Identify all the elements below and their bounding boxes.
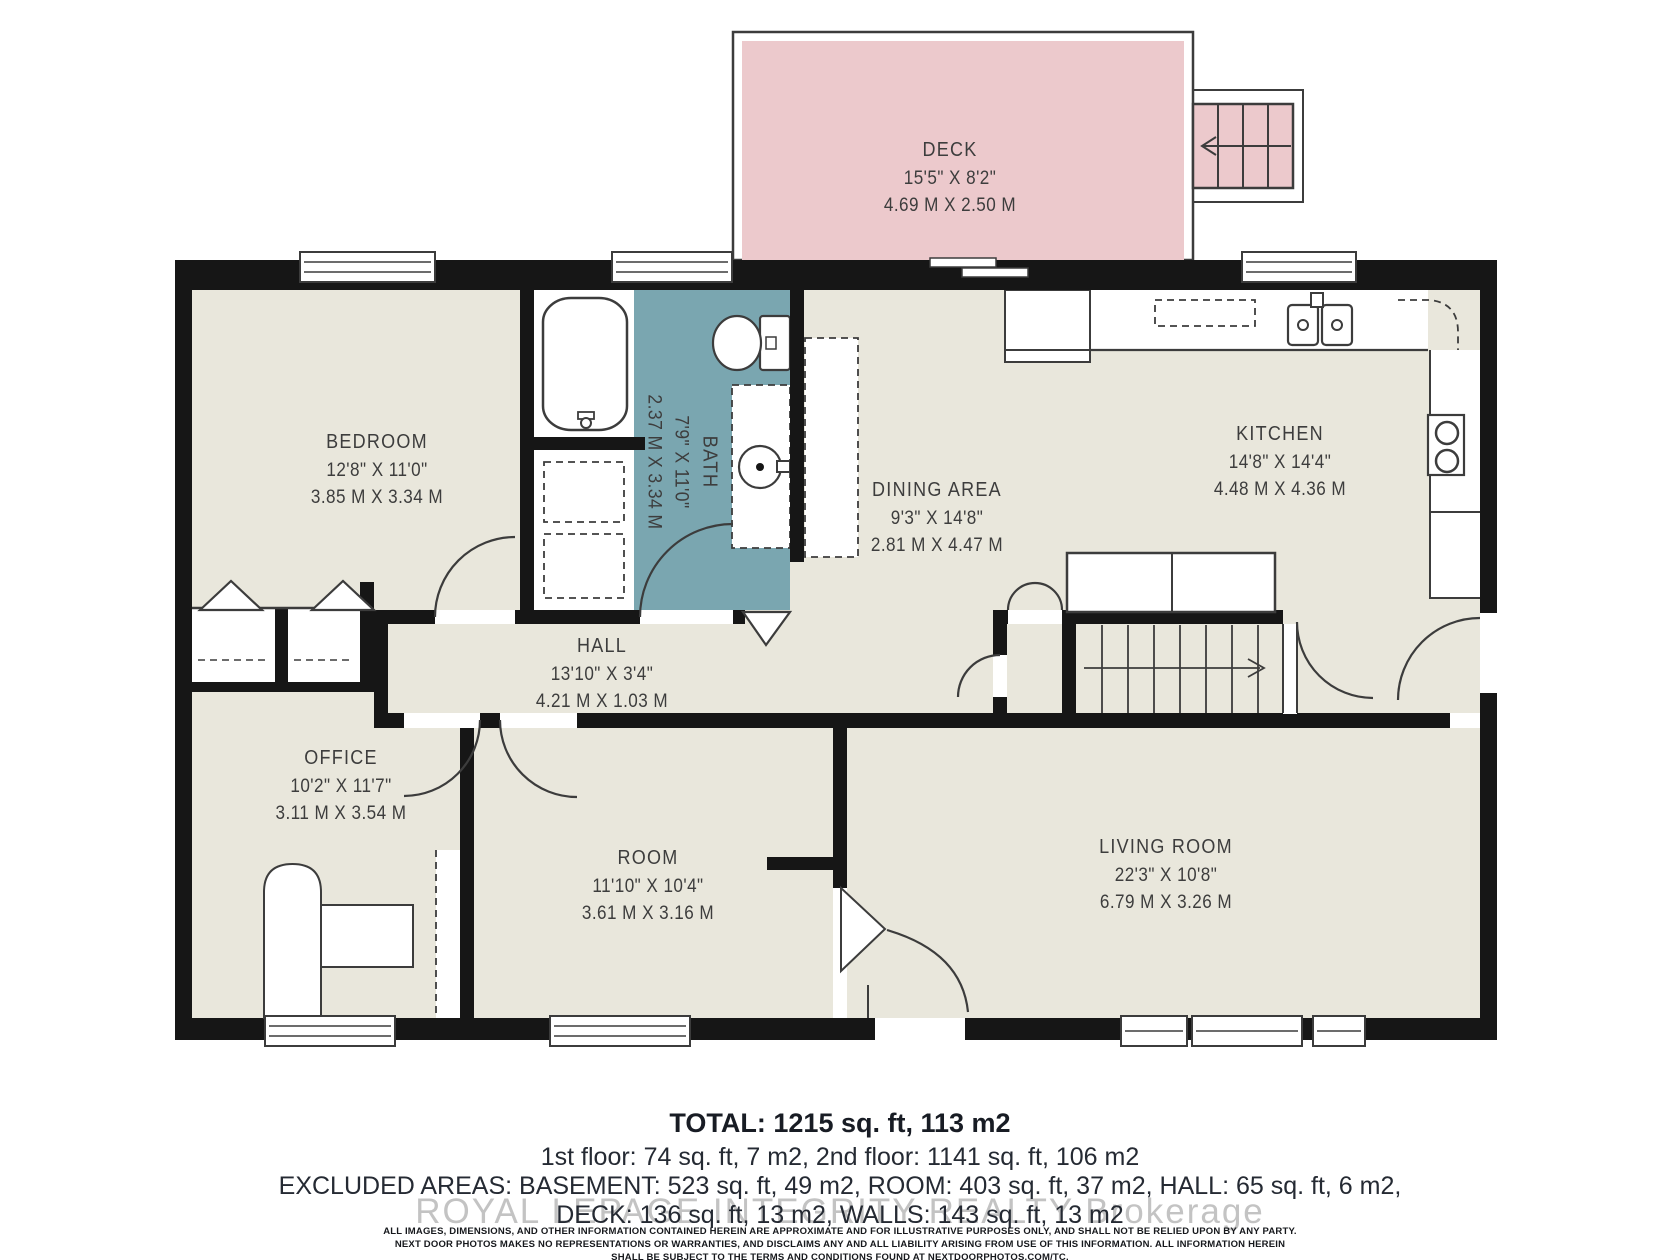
disclaimer-line3: SHALL BE SUBJECT TO THE TERMS AND CONDIT… (0, 1252, 1680, 1260)
room-dimensions-ft: 14'8" X 14'4" (1214, 449, 1346, 477)
bathroom-vanity-sink (732, 385, 790, 548)
room-name: HALL (536, 633, 668, 661)
room-dimensions-ft: 10'2" X 11'7" (276, 773, 407, 801)
room-name: DINING AREA (871, 477, 1003, 505)
room-name: LIVING ROOM (1099, 834, 1233, 862)
floor-plan-canvas: DECK 15'5" X 8'2" 4.69 M X 2.50 M BEDROO… (0, 0, 1680, 1260)
room-dimensions-m: 3.85 M X 3.34 M (311, 484, 443, 512)
room-dimensions-m: 3.61 M X 3.16 M (582, 900, 714, 928)
room-dimensions-m: 2.81 M X 4.47 M (871, 532, 1003, 560)
room-dimensions-ft: 9'3" X 14'8" (871, 505, 1003, 533)
toilet (713, 316, 790, 370)
excluded-areas-text-line1: EXCLUDED AREAS: BASEMENT: 523 sq. ft, 49… (0, 1172, 1680, 1201)
bath-wall-stub (534, 437, 645, 450)
room-label-bath: BATH 7'9" X 11'0" 2.37 M X 3.34 M (640, 394, 723, 529)
bathtub (534, 290, 634, 437)
kitchen-window (1242, 252, 1356, 282)
disclaimer-line2: NEXT DOOR PHOTOS MAKES NO REPRESENTATION… (0, 1239, 1680, 1250)
room-label-kitchen: KITCHEN 14'8" X 14'4" 4.48 M X 4.36 M (1214, 421, 1346, 504)
room-name: BATH (695, 394, 723, 529)
linen-closet (534, 450, 634, 610)
room-label-dining-area: DINING AREA 9'3" X 14'8" 2.81 M X 4.47 M (871, 477, 1003, 560)
office-closet (436, 850, 460, 1018)
room-dimensions-ft: 15'5" X 8'2" (884, 165, 1016, 193)
room-dimensions-m: 4.69 M X 2.50 M (884, 192, 1016, 220)
room-dimensions-ft: 13'10" X 3'4" (536, 661, 668, 689)
room-dimensions-m: 2.37 M X 3.34 M (640, 394, 668, 529)
stove (1428, 415, 1464, 475)
room-name: OFFICE (276, 745, 407, 773)
living-room-windows (1121, 1016, 1365, 1046)
room-label-living-room: LIVING ROOM 22'3" X 10'8" 6.79 M X 3.26 … (1099, 834, 1233, 917)
room-dimensions-m: 4.21 M X 1.03 M (536, 688, 668, 716)
disclaimer-line1: ALL IMAGES, DIMENSIONS, AND OTHER INFORM… (0, 1226, 1680, 1237)
room-label-deck: DECK 15'5" X 8'2" 4.69 M X 2.50 M (884, 137, 1016, 220)
kitchen-island (1067, 553, 1275, 612)
bath-window (612, 252, 732, 282)
room-label-room: ROOM 11'10" X 10'4" 3.61 M X 3.16 M (582, 845, 714, 928)
room-name: BEDROOM (311, 429, 443, 457)
room-window (550, 1016, 690, 1046)
room-dimensions-ft: 11'10" X 10'4" (582, 873, 714, 901)
room-dimensions-m: 3.11 M X 3.54 M (276, 800, 407, 828)
room-dimensions-ft: 7'9" X 11'0" (667, 394, 695, 529)
room-name: DECK (884, 137, 1016, 165)
office-window (265, 1016, 395, 1046)
room-dimensions-ft: 22'3" X 10'8" (1099, 862, 1233, 890)
room-dimensions-m: 6.79 M X 3.26 M (1099, 889, 1233, 917)
bedroom-window (300, 252, 435, 282)
room-name: ROOM (582, 845, 714, 873)
room-dimensions-ft: 12'8" X 11'0" (311, 457, 443, 485)
total-area-text: TOTAL: 1215 sq. ft, 113 m2 (0, 1108, 1680, 1139)
dining-cabinet (805, 338, 858, 557)
deck-stairs (1193, 90, 1303, 202)
room-dimensions-m: 4.48 M X 4.36 M (1214, 476, 1346, 504)
floor-plan-graphic (0, 0, 1680, 1260)
room-name: KITCHEN (1214, 421, 1346, 449)
room-label-hall: HALL 13'10" X 3'4" 4.21 M X 1.03 M (536, 633, 668, 716)
room-label-office: OFFICE 10'2" X 11'7" 3.11 M X 3.54 M (276, 745, 407, 828)
floor-areas-text: 1st floor: 74 sq. ft, 7 m2, 2nd floor: 1… (0, 1143, 1680, 1172)
room-label-bedroom: BEDROOM 12'8" X 11'0" 3.85 M X 3.34 M (311, 429, 443, 512)
